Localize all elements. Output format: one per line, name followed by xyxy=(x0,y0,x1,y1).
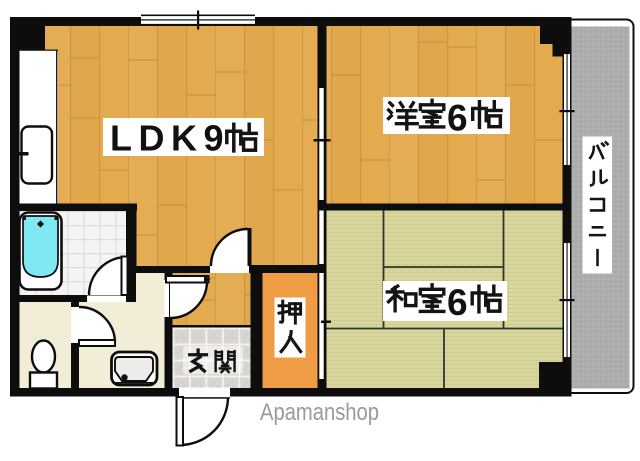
svg-text:6: 6 xyxy=(447,98,468,139)
svg-text:LDK9: LDK9 xyxy=(110,118,230,159)
svg-text:Apamanshop: Apamanshop xyxy=(260,399,379,426)
svg-text:6: 6 xyxy=(447,282,468,323)
